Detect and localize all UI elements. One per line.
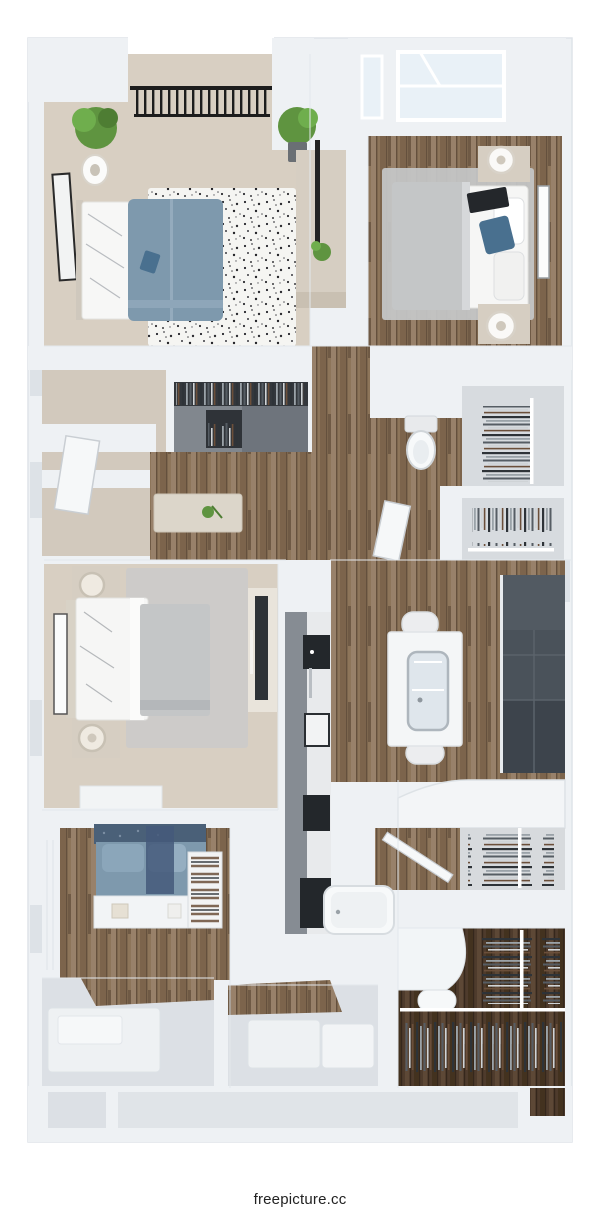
nightstand-lamp bbox=[478, 304, 530, 344]
closet-rail bbox=[518, 828, 522, 888]
tv-console bbox=[248, 588, 277, 712]
wood-corridor bbox=[312, 370, 370, 562]
walk-in-closet-bottom-right bbox=[398, 928, 565, 1088]
hanging-clothes bbox=[472, 936, 560, 1004]
basket-white bbox=[418, 990, 456, 1011]
toilet-icon bbox=[405, 416, 437, 469]
wall-block bbox=[28, 38, 128, 102]
floorplan-canvas: freepicture.cc bbox=[0, 0, 600, 1220]
faucet-icon bbox=[336, 910, 340, 914]
closet-under-desk bbox=[460, 828, 565, 890]
bedroom-top-left bbox=[28, 38, 346, 346]
watermark-text: freepicture.cc bbox=[0, 1191, 600, 1208]
closet-rail bbox=[400, 1008, 565, 1012]
desk-white bbox=[398, 780, 565, 828]
storage-bottom bbox=[28, 1086, 572, 1142]
cooktop-icon bbox=[303, 635, 330, 669]
closet-corner bbox=[530, 1088, 565, 1116]
nightstand-lamp bbox=[478, 146, 530, 182]
storage-niche bbox=[118, 1092, 518, 1128]
closet-rail bbox=[530, 398, 534, 484]
bed-gray bbox=[392, 182, 528, 310]
bathtub-icon bbox=[324, 886, 394, 934]
window-recess bbox=[30, 700, 42, 756]
tv-screen bbox=[255, 596, 268, 700]
alcove-floor bbox=[42, 370, 166, 556]
bedroom-middle-left bbox=[42, 564, 278, 830]
storage-niche bbox=[48, 1092, 106, 1128]
floor-mat bbox=[322, 1024, 374, 1068]
hanging-clothes bbox=[472, 508, 552, 546]
window-recess bbox=[30, 462, 42, 518]
wardrobe-gray bbox=[166, 370, 312, 452]
closet-rail bbox=[520, 930, 524, 1008]
dresser-white bbox=[80, 786, 162, 810]
skylight-icon bbox=[362, 52, 504, 120]
bedroom-top-right bbox=[348, 38, 566, 346]
kitchen-dining bbox=[285, 560, 565, 934]
faucet-icon bbox=[418, 698, 423, 703]
galley-counter bbox=[285, 560, 331, 934]
divider-cabinet bbox=[296, 140, 346, 308]
wood-threshold bbox=[72, 954, 214, 1006]
console-table bbox=[154, 494, 242, 532]
charcoal-cabinets bbox=[500, 575, 565, 773]
wall-art-frame bbox=[538, 186, 549, 278]
wall-band bbox=[28, 346, 572, 370]
floorplan-render bbox=[0, 0, 600, 1220]
closet-rail bbox=[468, 548, 554, 552]
hanging-clothes bbox=[468, 834, 554, 886]
door-opening bbox=[312, 346, 370, 370]
floor-mat bbox=[248, 1020, 320, 1068]
curved-counter bbox=[398, 928, 466, 990]
bed-white-gray bbox=[66, 598, 210, 720]
wall-art-frame bbox=[54, 614, 67, 714]
window-recess bbox=[30, 905, 42, 953]
navy-throw bbox=[146, 826, 174, 894]
island-table bbox=[388, 612, 462, 764]
sink-icon bbox=[305, 714, 329, 746]
bed-blue bbox=[76, 199, 223, 321]
nightstand-lamp bbox=[72, 716, 120, 758]
folded-clothes-shelf bbox=[188, 852, 222, 928]
